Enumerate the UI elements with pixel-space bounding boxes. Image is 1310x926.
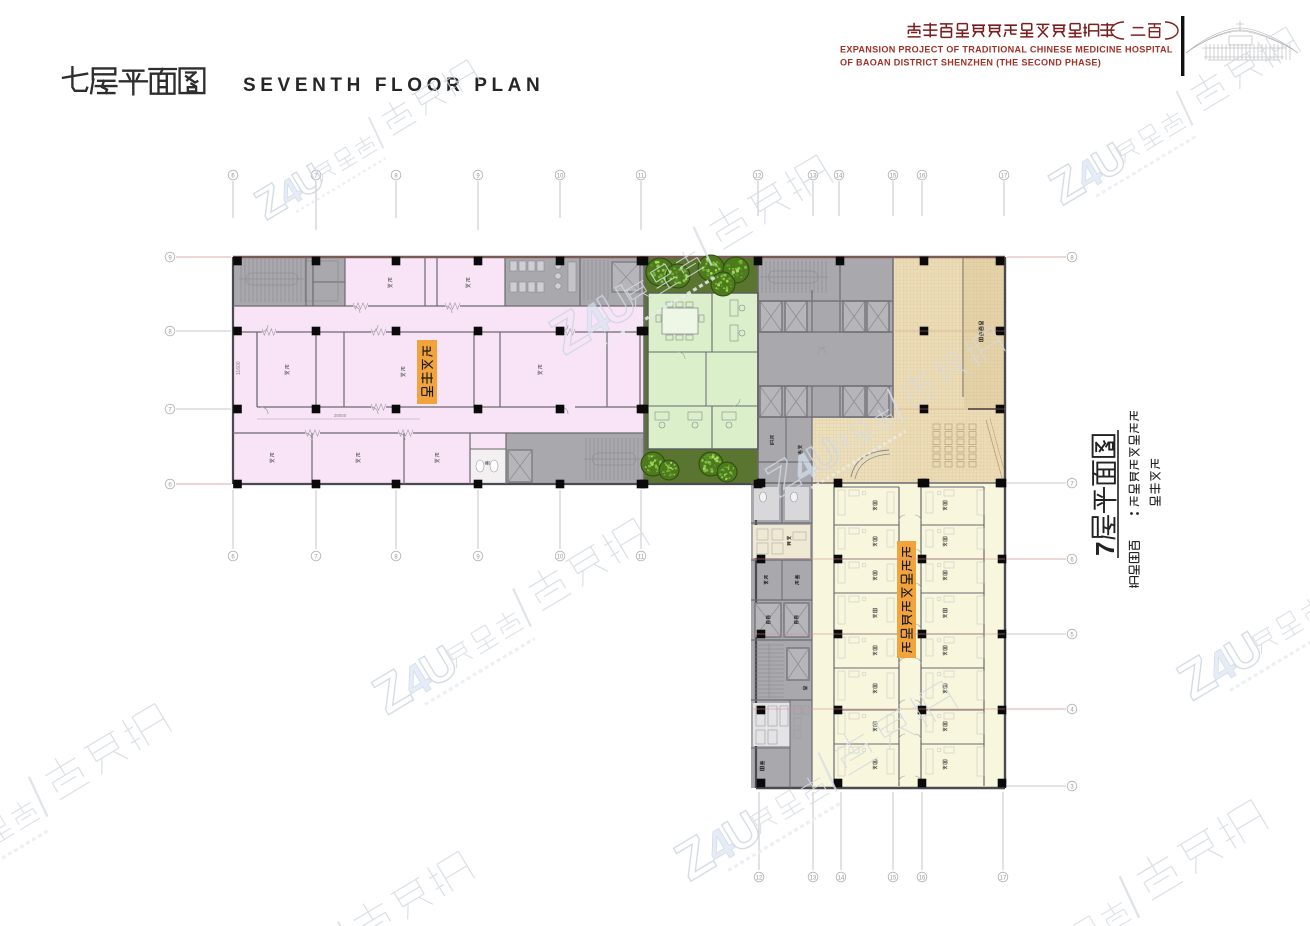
svg-text:28000: 28000 (334, 413, 347, 418)
svg-text:8: 8 (394, 555, 398, 561)
svg-text:16: 16 (919, 876, 926, 882)
svg-text:13: 13 (810, 876, 817, 882)
svg-text:14: 14 (838, 876, 845, 882)
svg-text:7: 7 (314, 555, 318, 561)
svg-text:6: 6 (168, 483, 172, 489)
svg-text:8: 8 (394, 174, 398, 180)
svg-text:14: 14 (836, 174, 843, 180)
svg-text:OF BAOAN DISTRICT SHENZHEN (TH: OF BAOAN DISTRICT SHENZHEN (THE SECOND P… (840, 58, 1101, 68)
svg-text:17: 17 (1001, 174, 1008, 180)
svg-text:7: 7 (1090, 542, 1120, 556)
svg-text:10: 10 (557, 174, 564, 180)
svg-text:6: 6 (231, 555, 235, 561)
svg-text:11600: 11600 (236, 361, 242, 375)
svg-text:12: 12 (756, 876, 763, 882)
svg-text:SEVENTH FLOOR PLAN: SEVENTH FLOOR PLAN (243, 75, 544, 96)
svg-text:3: 3 (1070, 785, 1074, 791)
svg-text:10: 10 (557, 555, 564, 561)
svg-text:15: 15 (890, 174, 897, 180)
svg-text:16: 16 (919, 174, 926, 180)
svg-text:9: 9 (476, 174, 480, 180)
svg-text:9: 9 (168, 256, 172, 262)
svg-text:4: 4 (1070, 708, 1074, 714)
svg-text:15: 15 (890, 876, 897, 882)
svg-text:9: 9 (476, 555, 480, 561)
svg-text:7: 7 (168, 408, 172, 414)
svg-text:12: 12 (755, 174, 762, 180)
svg-text:7: 7 (1070, 482, 1074, 488)
svg-text:11: 11 (638, 555, 645, 561)
svg-text:11: 11 (638, 174, 645, 180)
svg-text:6: 6 (231, 174, 235, 180)
svg-text:6: 6 (1070, 558, 1074, 564)
svg-text:8: 8 (168, 330, 172, 336)
svg-text:5: 5 (1070, 633, 1074, 639)
svg-text:17: 17 (1000, 876, 1007, 882)
svg-text:8: 8 (1070, 256, 1074, 262)
svg-text:EXPANSION PROJECT OF TRADITION: EXPANSION PROJECT OF TRADITIONAL CHINESE… (840, 45, 1173, 55)
